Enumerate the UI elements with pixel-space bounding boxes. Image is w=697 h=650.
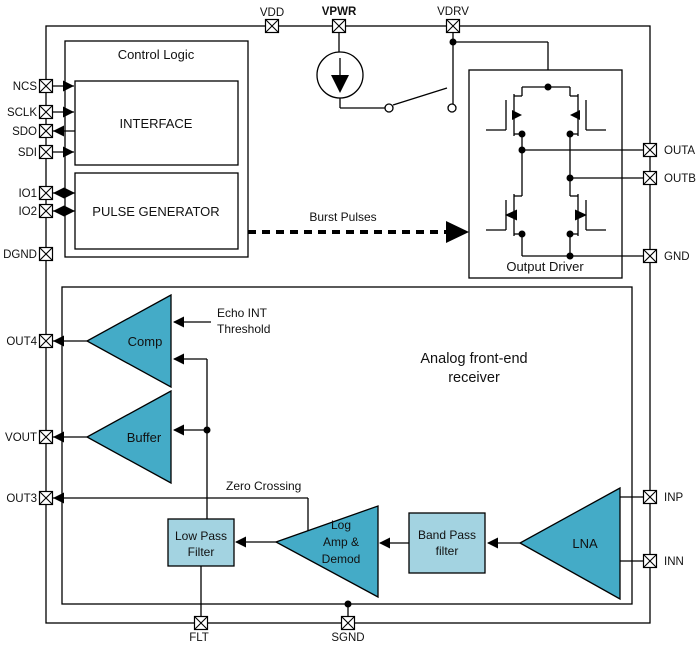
pin-label-sclk: SCLK bbox=[7, 107, 37, 119]
pin-label-outb: OUTB bbox=[664, 173, 696, 185]
buffer-label: Buffer bbox=[127, 430, 162, 445]
pin-label-inp: INP bbox=[664, 492, 684, 504]
afe-label-line2: receiver bbox=[448, 370, 500, 386]
pin-inp bbox=[644, 491, 657, 504]
burst-pulses-label: Burst Pulses bbox=[309, 210, 376, 224]
pin-label-gnd: GND bbox=[664, 251, 690, 263]
pin-label-out3: OUT3 bbox=[6, 493, 37, 505]
pin-gnd bbox=[644, 250, 657, 263]
control-logic-label: Control Logic bbox=[118, 47, 195, 62]
pin-label-vdd: VDD bbox=[260, 7, 284, 19]
pin-label-outa: OUTA bbox=[664, 145, 695, 157]
output-driver-block: Output Driver bbox=[469, 70, 644, 278]
pin-io1 bbox=[40, 187, 53, 200]
interface-label: INTERFACE bbox=[120, 116, 193, 131]
comp-label: Comp bbox=[128, 334, 163, 349]
pin-label-sgnd: SGND bbox=[331, 632, 364, 644]
afe-block: Analog front-end receiver Comp Buffer Ec… bbox=[53, 287, 644, 617]
afe-label-line1: Analog front-end bbox=[420, 351, 527, 367]
control-logic-block: Control Logic INTERFACE PULSE GENERATOR bbox=[65, 41, 248, 257]
switch-contact-right bbox=[448, 104, 456, 112]
pin-label-io1: IO1 bbox=[18, 188, 37, 200]
pin-ncs bbox=[40, 80, 53, 93]
pin-vdd bbox=[266, 20, 279, 33]
pin-outa bbox=[644, 144, 657, 157]
log-amp-label-line2: Amp & bbox=[323, 535, 359, 549]
echo-label-line1: Echo INT bbox=[217, 306, 268, 320]
output-driver-box bbox=[469, 70, 622, 278]
pin-sclk bbox=[40, 106, 53, 119]
output-driver-label: Output Driver bbox=[506, 259, 584, 274]
pin-label-dgnd: DGND bbox=[3, 249, 37, 261]
pin-label-vdrv: VDRV bbox=[437, 6, 469, 18]
pin-vpwr bbox=[333, 20, 346, 33]
pin-label-inn: INN bbox=[664, 556, 684, 568]
low-pass-label-line2: Filter bbox=[188, 545, 215, 559]
pin-label-out4: OUT4 bbox=[6, 336, 37, 348]
pin-sdi bbox=[40, 146, 53, 159]
pin-label-sdo: SDO bbox=[12, 126, 37, 138]
pin-label-io2: IO2 bbox=[18, 206, 37, 218]
pin-sgnd bbox=[342, 617, 355, 630]
pin-label-vout: VOUT bbox=[5, 432, 37, 444]
pin-vout bbox=[40, 431, 53, 444]
pulse-generator-label: PULSE GENERATOR bbox=[92, 204, 219, 219]
band-pass-filter-box bbox=[409, 513, 485, 573]
pin-dgnd bbox=[40, 248, 53, 261]
pin-out3 bbox=[40, 492, 53, 505]
block-diagram: Control Logic INTERFACE PULSE GENERATOR bbox=[0, 0, 697, 650]
pin-flt bbox=[195, 617, 208, 630]
pin-inn bbox=[644, 555, 657, 568]
zero-crossing-label: Zero Crossing bbox=[226, 479, 301, 493]
log-amp-label-line1: Log bbox=[331, 518, 351, 532]
band-pass-label-line2: filter bbox=[436, 544, 459, 558]
pin-io2 bbox=[40, 205, 53, 218]
pin-label-flt: FLT bbox=[189, 632, 209, 644]
echo-label-line2: Threshold bbox=[217, 322, 270, 336]
log-amp-label-line3: Demod bbox=[322, 552, 361, 566]
low-pass-label-line1: Low Pass bbox=[175, 529, 227, 543]
switch-contact-left bbox=[385, 104, 393, 112]
pin-vdrv bbox=[447, 20, 460, 33]
pin-label-vpwr: VPWR bbox=[322, 6, 357, 18]
diagram-canvas: Control Logic INTERFACE PULSE GENERATOR bbox=[0, 0, 697, 650]
band-pass-label-line1: Band Pass bbox=[418, 528, 476, 542]
pin-outb bbox=[644, 172, 657, 185]
pin-label-sdi: SDI bbox=[18, 147, 37, 159]
pin-out4 bbox=[40, 335, 53, 348]
pin-sdo bbox=[40, 125, 53, 138]
lna-label: LNA bbox=[572, 536, 598, 551]
pin-label-ncs: NCS bbox=[13, 81, 38, 93]
